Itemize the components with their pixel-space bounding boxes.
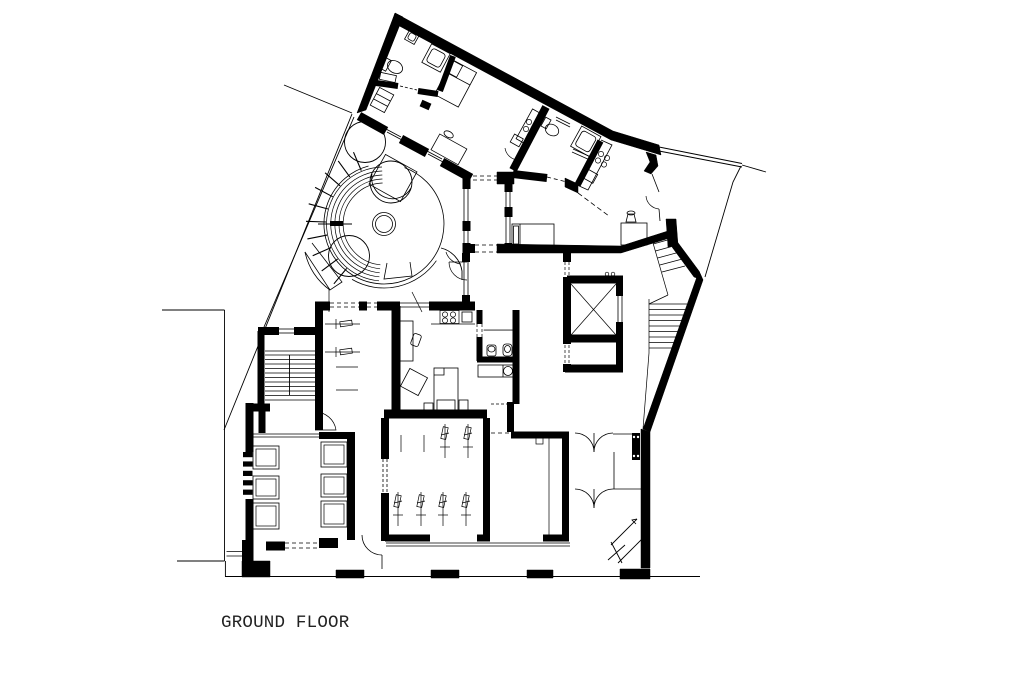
svg-text:GROUND FLOOR: GROUND FLOOR [221, 613, 350, 633]
